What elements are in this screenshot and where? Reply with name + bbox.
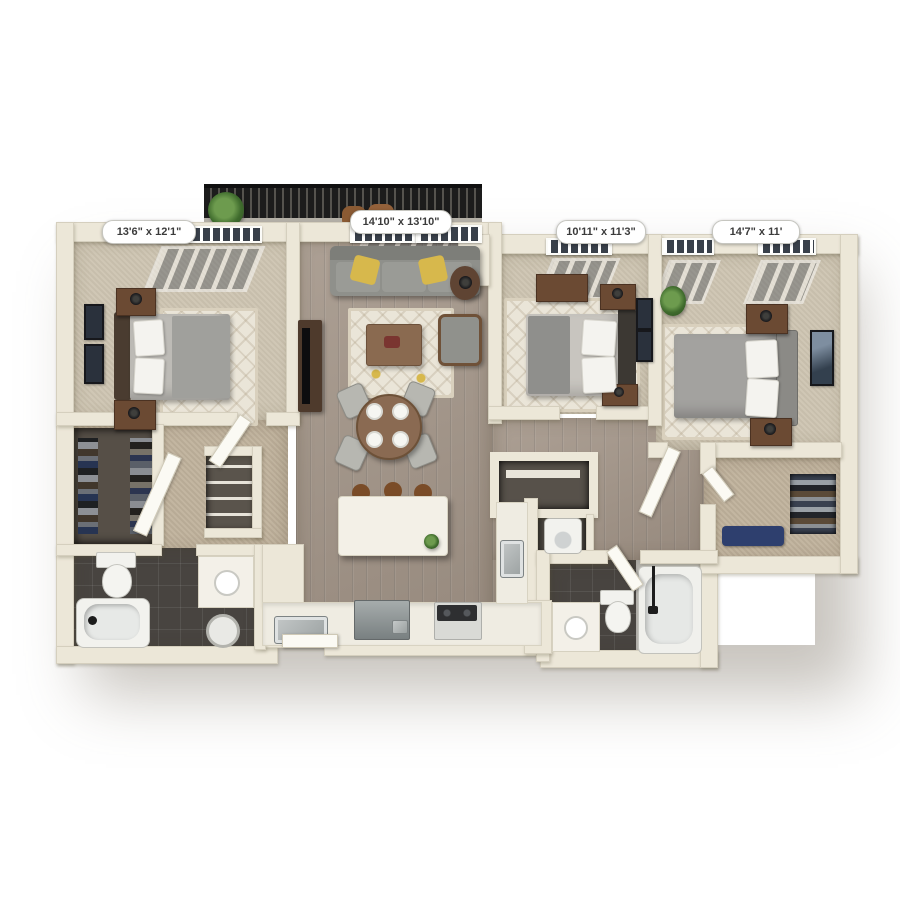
shower-pipe-icon (652, 566, 655, 610)
sofa-back (330, 246, 480, 260)
wall-art-middle-1 (636, 298, 653, 330)
dining-plate-3 (366, 431, 383, 448)
label-living-room-dimensions: 14'10" x 13'10" (350, 210, 452, 234)
lamp-right-2-icon (764, 423, 776, 435)
wall-art-left-1 (84, 304, 104, 340)
dining-plate-1 (366, 403, 383, 420)
wall-midbed-bottom-b (596, 406, 654, 420)
washer-appliance (544, 518, 582, 554)
armchair (438, 314, 482, 366)
wall-linen-right (252, 446, 262, 538)
bed-left-duvet (172, 316, 230, 398)
window-projection-bedroom-left (143, 246, 266, 292)
dining-table (356, 394, 422, 460)
wall-living-midbed (488, 222, 502, 424)
dining-plate-4 (392, 431, 409, 448)
vanity-2-sink (564, 616, 588, 640)
bedroom-right-plant-icon (660, 286, 686, 316)
sofa-pillow-yellow-2 (418, 255, 449, 286)
bed-left-pillow-1 (133, 319, 165, 357)
wall-bedleft-bottom-b (266, 412, 300, 426)
stove-cooktop (437, 605, 477, 621)
tv-screen (302, 328, 310, 404)
lamp-middle-2-icon (614, 387, 624, 397)
closet-right-bench (722, 526, 784, 546)
bed-middle-pillow-2 (581, 356, 617, 394)
small-appliance (392, 620, 408, 634)
bed-right-pillow-1 (745, 339, 779, 379)
dining-plate-2 (392, 403, 409, 420)
bathtub-1-faucet-icon (88, 616, 97, 625)
dresser-middle (536, 274, 588, 302)
utility-closet-shelf (506, 470, 580, 478)
door-entry (282, 634, 338, 648)
lamp-right-1-icon (760, 310, 772, 322)
wall-midbed-bottom-a (488, 406, 560, 420)
side-table-lamp-icon (459, 276, 472, 289)
shower-fixture-icon (648, 606, 658, 614)
wall-bottom-bath1 (56, 646, 278, 664)
label-bedroom-middle-dimensions: 10'11" x 11'3" (556, 220, 646, 244)
wall-bath2-top-b (640, 550, 718, 564)
bed-right-pillow-2 (745, 378, 780, 418)
bed-right-headboard (776, 330, 798, 426)
wall-outer-left (56, 222, 74, 664)
floorplan-canvas: 13'6" x 12'1" 14'10" x 13'10" 10'11" x 1… (0, 0, 900, 900)
window-bedroom-right-1 (662, 238, 714, 255)
closet-left-clothes (78, 438, 98, 534)
wall-linen-bottom (204, 528, 262, 538)
label-bedroom-left-dimensions: 13'6" x 12'1" (102, 220, 196, 244)
vanity-1-sink (214, 570, 240, 596)
label-bedroom-right-dimensions: 14'7" x 11' (712, 220, 800, 244)
wall-outer-right (840, 234, 858, 574)
closet-right-clothes (790, 474, 836, 534)
kitchen-sink-2 (500, 540, 524, 578)
coffee-table-decor (384, 336, 400, 348)
toilet-1-bowl (102, 564, 132, 598)
lamp-left-2-icon (128, 407, 140, 419)
wall-art-right (810, 330, 834, 386)
lamp-left-1-icon (130, 293, 142, 305)
toilet-2-bowl (605, 601, 631, 633)
wall-art-middle-2 (636, 330, 653, 362)
wall-closet-right-bottom (700, 556, 858, 574)
wall-art-left-2 (84, 344, 104, 384)
wall-filler-bath1-kitchen (262, 544, 304, 606)
bed-left-pillow-2 (133, 357, 165, 395)
lamp-middle-1-icon (612, 288, 623, 299)
island-plant-icon (424, 534, 439, 549)
bed-middle-throw (528, 316, 570, 394)
water-heater (206, 614, 240, 648)
bed-middle-pillow-1 (581, 319, 617, 357)
